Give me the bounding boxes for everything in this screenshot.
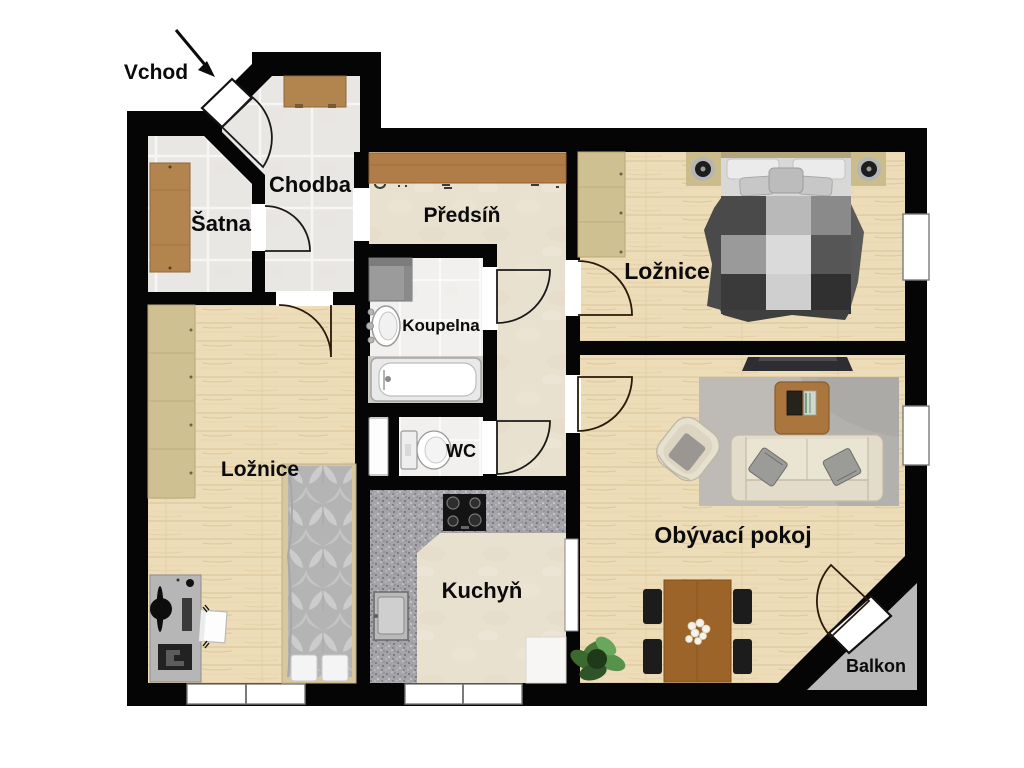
svg-text:WC: WC xyxy=(446,441,476,461)
svg-text:Chodba: Chodba xyxy=(269,172,352,197)
svg-text:Ložnice: Ložnice xyxy=(221,458,299,481)
svg-text:Kuchyň: Kuchyň xyxy=(442,578,523,603)
svg-text:Šatna: Šatna xyxy=(191,211,252,236)
svg-text:Balkon: Balkon xyxy=(846,656,906,676)
svg-text:Předsíň: Předsíň xyxy=(423,204,500,227)
svg-text:Obývací pokoj: Obývací pokoj xyxy=(654,522,811,548)
svg-text:Koupelna: Koupelna xyxy=(402,316,480,335)
svg-text:Vchod: Vchod xyxy=(124,61,188,84)
svg-text:Ložnice: Ložnice xyxy=(624,258,710,284)
